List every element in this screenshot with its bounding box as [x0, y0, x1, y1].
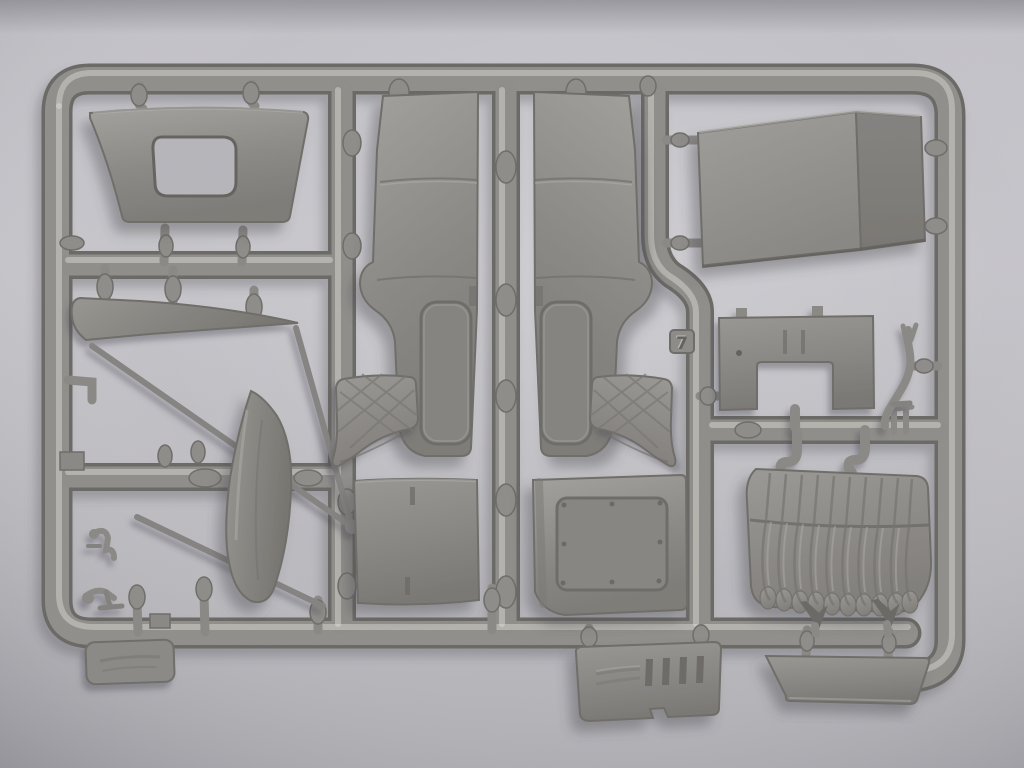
photo-model-kit-sprue: 7 7: [0, 0, 1024, 768]
photo-grain-overlay: [0, 0, 1024, 768]
